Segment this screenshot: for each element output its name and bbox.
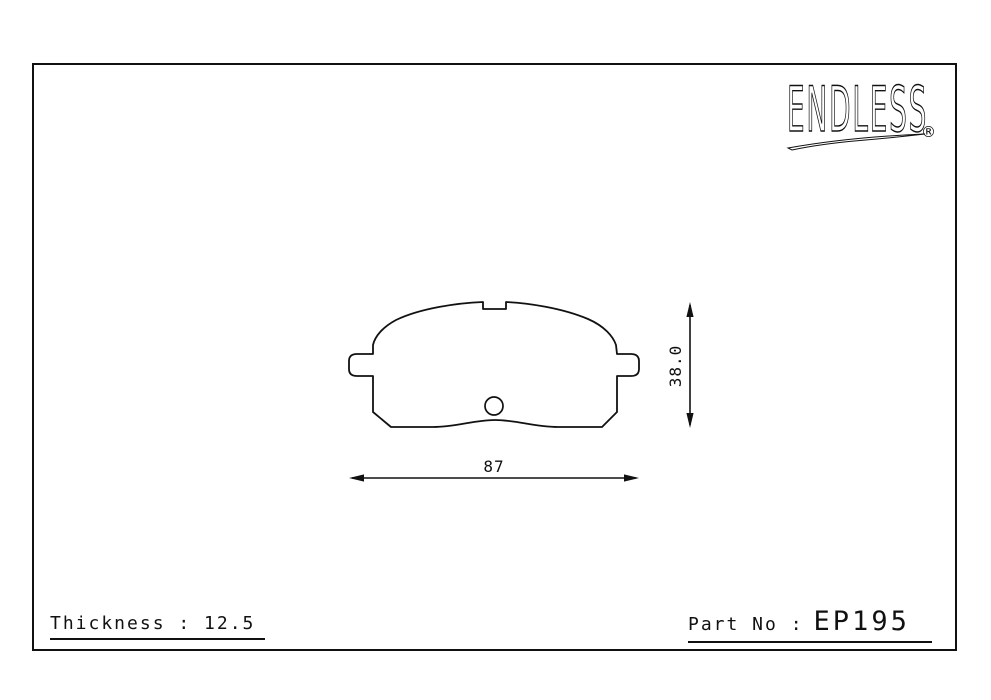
mounting-hole bbox=[485, 397, 503, 415]
height-dimension-label: 38.0 bbox=[666, 345, 685, 388]
arrow-right-icon bbox=[624, 474, 639, 481]
part-no-block: Part No :EP195 bbox=[688, 606, 932, 643]
height-dimension: 38.0 bbox=[666, 302, 694, 428]
arrow-down-icon bbox=[686, 413, 693, 428]
endless-logo: ENDLESS ® bbox=[787, 74, 936, 150]
technical-drawing: ENDLESS ® 38.0 87 bbox=[0, 0, 991, 700]
width-dimension: 87 bbox=[349, 457, 639, 482]
brake-pad-drawing bbox=[349, 302, 639, 427]
part-no-value: EP195 bbox=[814, 606, 910, 637]
thickness-label: Thickness : 12.5 bbox=[50, 613, 265, 640]
width-dimension-label: 87 bbox=[483, 457, 504, 476]
spec-sheet-page: ENDLESS ® 38.0 87 Thickness : 12.5 Part … bbox=[0, 0, 991, 700]
arrow-left-icon bbox=[349, 474, 364, 481]
part-no-label: Part No : bbox=[688, 614, 804, 635]
arrow-up-icon bbox=[686, 302, 693, 317]
registered-mark-icon: ® bbox=[921, 123, 936, 141]
